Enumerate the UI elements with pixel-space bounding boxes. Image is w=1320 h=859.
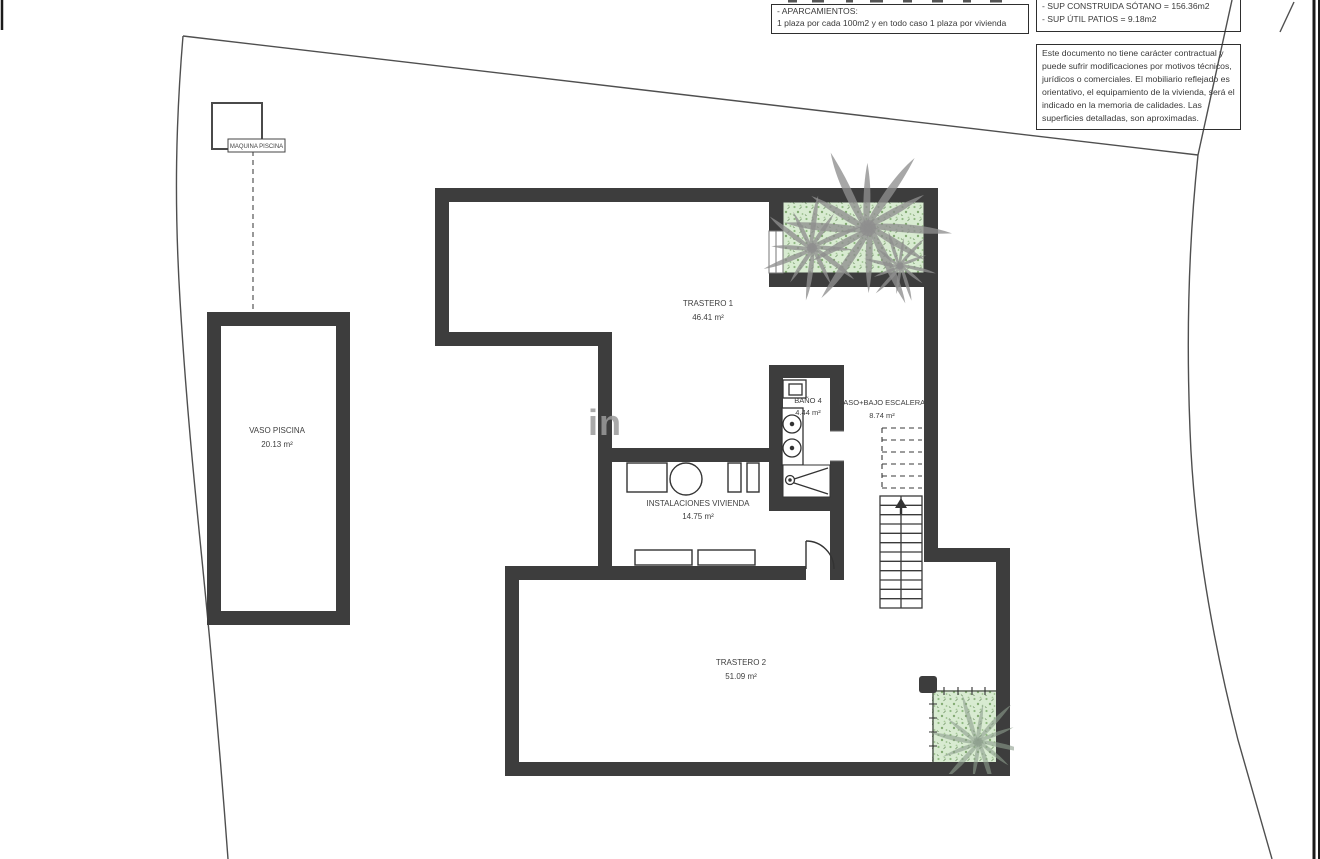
wall-segment [769, 365, 783, 511]
room-area-label: 46.41 m² [692, 313, 724, 322]
watermark-text: in [588, 402, 622, 444]
pool-area-label: 20.13 m² [261, 440, 293, 449]
pool-name-label: VASO PISCINA [249, 426, 306, 435]
wall-segment [996, 552, 1010, 776]
wall-segment [435, 332, 612, 346]
shower-icon [783, 465, 830, 497]
wall-segment [435, 188, 449, 346]
room-name-label: BAÑO 4 [794, 396, 822, 405]
staircase [880, 428, 922, 608]
pool-group: VASO PISCINA 20.13 m² [207, 312, 350, 625]
door-swing-icon [806, 541, 834, 569]
equipment-unit [728, 463, 741, 492]
floorplan-sheet: MAQUINA PISCINA VASO PISCINA 20.13 m² [0, 0, 1320, 859]
wall-segment [435, 188, 938, 202]
parking-note-box: - APARCAMIENTOS: 1 plaza por cada 100m2 … [771, 4, 1029, 34]
room-name-label: PASO+BAJO ESCALERA [839, 398, 925, 407]
room-area-label: 51.09 m² [725, 672, 757, 681]
pool-machine-label: MAQUINA PISCINA [230, 144, 283, 150]
wall-segment [830, 461, 844, 580]
parking-note-label: - APARCAMIENTOS: [777, 6, 1023, 18]
equipment-unit [747, 463, 759, 492]
pool-basin [221, 326, 336, 611]
wall-segment [924, 188, 938, 562]
wall-segment [769, 497, 844, 511]
wall-segment [598, 448, 769, 462]
cropped-text-marks [788, 0, 1002, 3]
surface-patios-value: - SUP ÚTIL PATIOS = 9.18m2 [1042, 13, 1235, 26]
bathroom-door-jambs [830, 431, 844, 461]
pool-machine-group: MAQUINA PISCINA [212, 103, 285, 312]
surface-summary-box: - SUP CONSTRUIDA SÓTANO = 156.36m2 - SUP… [1036, 0, 1241, 32]
room-name-label: TRASTERO 2 [716, 658, 767, 667]
surface-sotano-value: - SUP CONSTRUIDA SÓTANO = 156.36m2 [1042, 0, 1235, 13]
wall-segment [769, 365, 844, 378]
parking-note-value: 1 plaza por cada 100m2 y en todo caso 1 … [777, 18, 1023, 30]
equipment-shelf [698, 550, 755, 565]
plot-boundary-corner-tick [1280, 2, 1294, 32]
wall-segment [505, 762, 1010, 776]
patio-corner-pillar [919, 676, 937, 693]
room-name-label: TRASTERO 1 [683, 299, 734, 308]
room-area-label: 14.75 m² [682, 512, 714, 521]
equipment-unit [627, 463, 667, 492]
boiler-tank-icon [670, 463, 702, 495]
room-name-label: INSTALACIONES VIVIENDA [647, 499, 751, 508]
wall-segment [505, 566, 519, 776]
room-area-label: 4.44 m² [795, 408, 821, 417]
equipment-shelf [635, 550, 692, 565]
wall-segment [831, 566, 844, 580]
stair-understair-dashed [882, 428, 922, 490]
plot-boundary-right [1188, 155, 1272, 859]
room-area-label: 8.74 m² [869, 411, 895, 420]
disclaimer-box: Este documento no tiene carácter contrac… [1036, 44, 1241, 130]
wall-segment [505, 566, 806, 580]
